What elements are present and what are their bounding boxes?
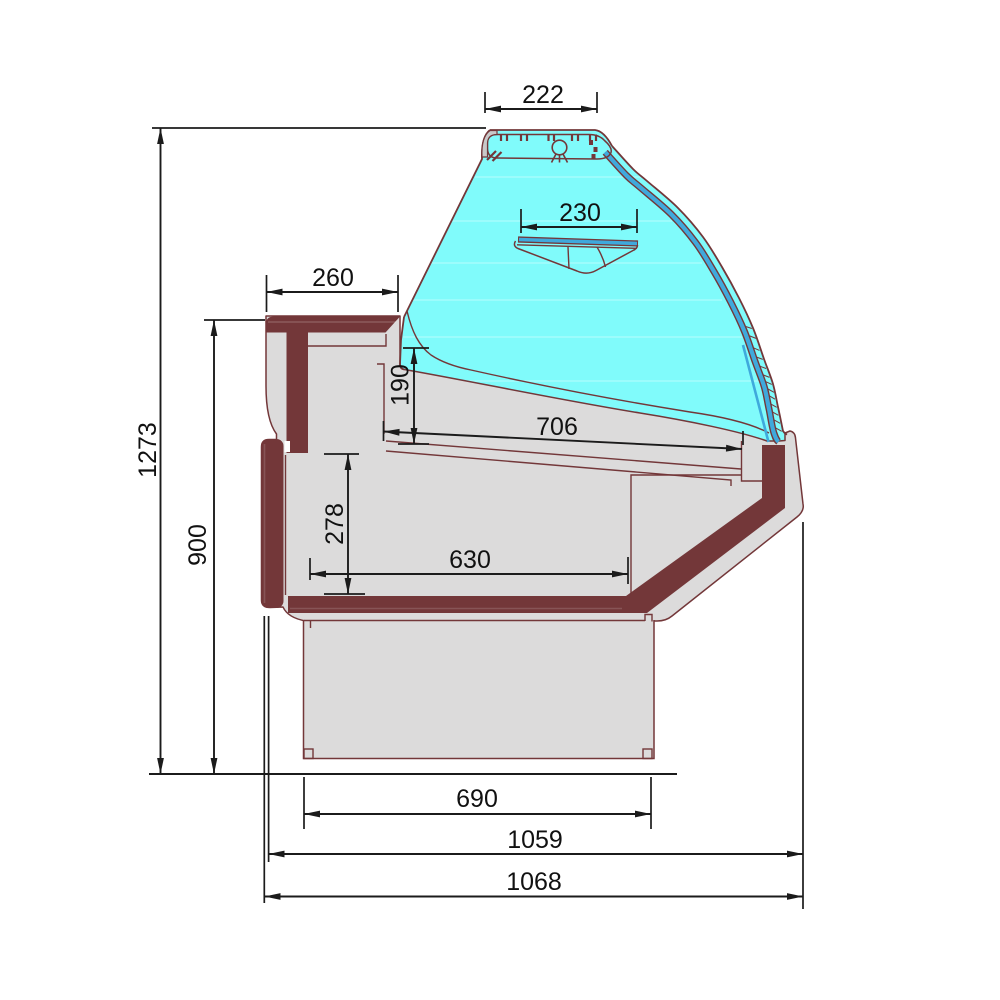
svg-text:1273: 1273 xyxy=(134,422,162,478)
svg-text:260: 260 xyxy=(312,264,354,292)
svg-text:1068: 1068 xyxy=(506,868,562,896)
svg-text:1059: 1059 xyxy=(507,826,563,854)
svg-text:690: 690 xyxy=(456,785,498,813)
svg-text:222: 222 xyxy=(522,81,564,109)
svg-text:190: 190 xyxy=(387,364,415,406)
svg-text:706: 706 xyxy=(536,413,578,441)
svg-text:230: 230 xyxy=(559,199,601,227)
svg-text:630: 630 xyxy=(449,546,491,574)
svg-text:278: 278 xyxy=(321,503,349,545)
svg-text:900: 900 xyxy=(184,524,212,566)
